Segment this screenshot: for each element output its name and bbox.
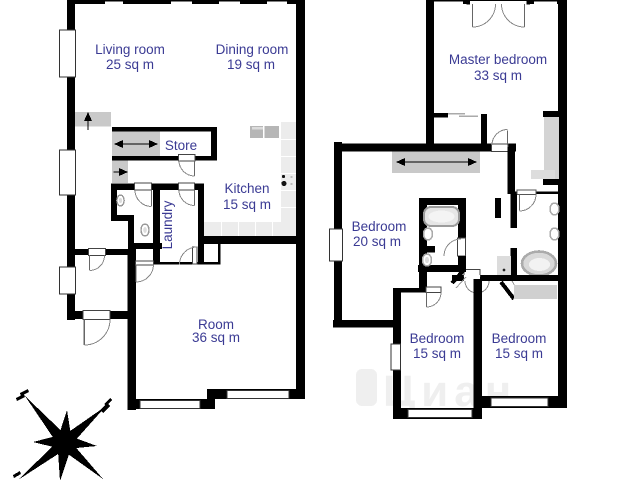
svg-text:Kitchen: Kitchen: [224, 181, 269, 196]
svg-text:15 sq m: 15 sq m: [413, 346, 461, 361]
svg-text:Bedroom: Bedroom: [352, 219, 407, 234]
svg-text:Dining room: Dining room: [216, 42, 289, 57]
svg-text:Laundry: Laundry: [160, 200, 175, 249]
svg-text:20 sq m: 20 sq m: [353, 234, 401, 249]
svg-text:Bedroom: Bedroom: [492, 331, 547, 346]
svg-text:Store: Store: [165, 138, 197, 153]
svg-text:25 sq m: 25 sq m: [106, 57, 154, 72]
svg-text:15 sq m: 15 sq m: [223, 197, 271, 212]
svg-text:33 sq m: 33 sq m: [474, 68, 522, 83]
svg-text:Master bedroom: Master bedroom: [449, 52, 547, 67]
svg-text:15 sq m: 15 sq m: [495, 346, 543, 361]
svg-text:36 sq m: 36 sq m: [192, 330, 240, 345]
svg-text:19 sq m: 19 sq m: [227, 57, 275, 72]
svg-text:Bedroom: Bedroom: [410, 331, 465, 346]
svg-text:Living room: Living room: [95, 42, 165, 57]
